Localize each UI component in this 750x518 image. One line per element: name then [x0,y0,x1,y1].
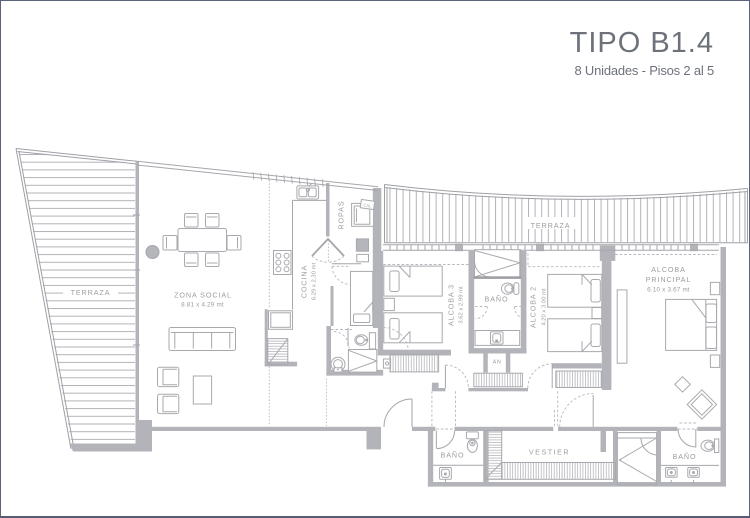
svg-text:6.10 x 3.67 mt: 6.10 x 3.67 mt [647,287,690,294]
svg-text:COCINA: COCINA [300,265,309,298]
svg-text:BAÑO: BAÑO [673,452,697,461]
svg-text:TERRAZA: TERRAZA [71,288,111,297]
svg-text:TERRAZA: TERRAZA [531,221,571,230]
svg-text:ALCOBA 2: ALCOBA 2 [529,286,538,328]
svg-text:4.20 x 3.00 mt: 4.20 x 3.00 mt [542,288,548,326]
svg-text:AN: AN [493,360,502,366]
svg-text:ALCOBA 3: ALCOBA 3 [447,284,456,326]
svg-text:VESTIER: VESTIER [529,448,570,457]
svg-text:BAÑO: BAÑO [485,295,509,304]
svg-text:ZONA SOCIAL: ZONA SOCIAL [174,291,232,300]
svg-text:ROPAS: ROPAS [337,200,346,229]
svg-text:6.29 x 2.30 mt: 6.29 x 2.30 mt [312,262,318,300]
svg-text:3.62 x 2.99 mt: 3.62 x 2.99 mt [459,286,465,324]
svg-text:BAÑO: BAÑO [441,451,465,460]
svg-text:8.81 x 4.29 mt: 8.81 x 4.29 mt [181,302,224,309]
svg-text:PRINCIPAL: PRINCIPAL [646,275,692,284]
svg-text:ALCOBA: ALCOBA [651,265,686,274]
